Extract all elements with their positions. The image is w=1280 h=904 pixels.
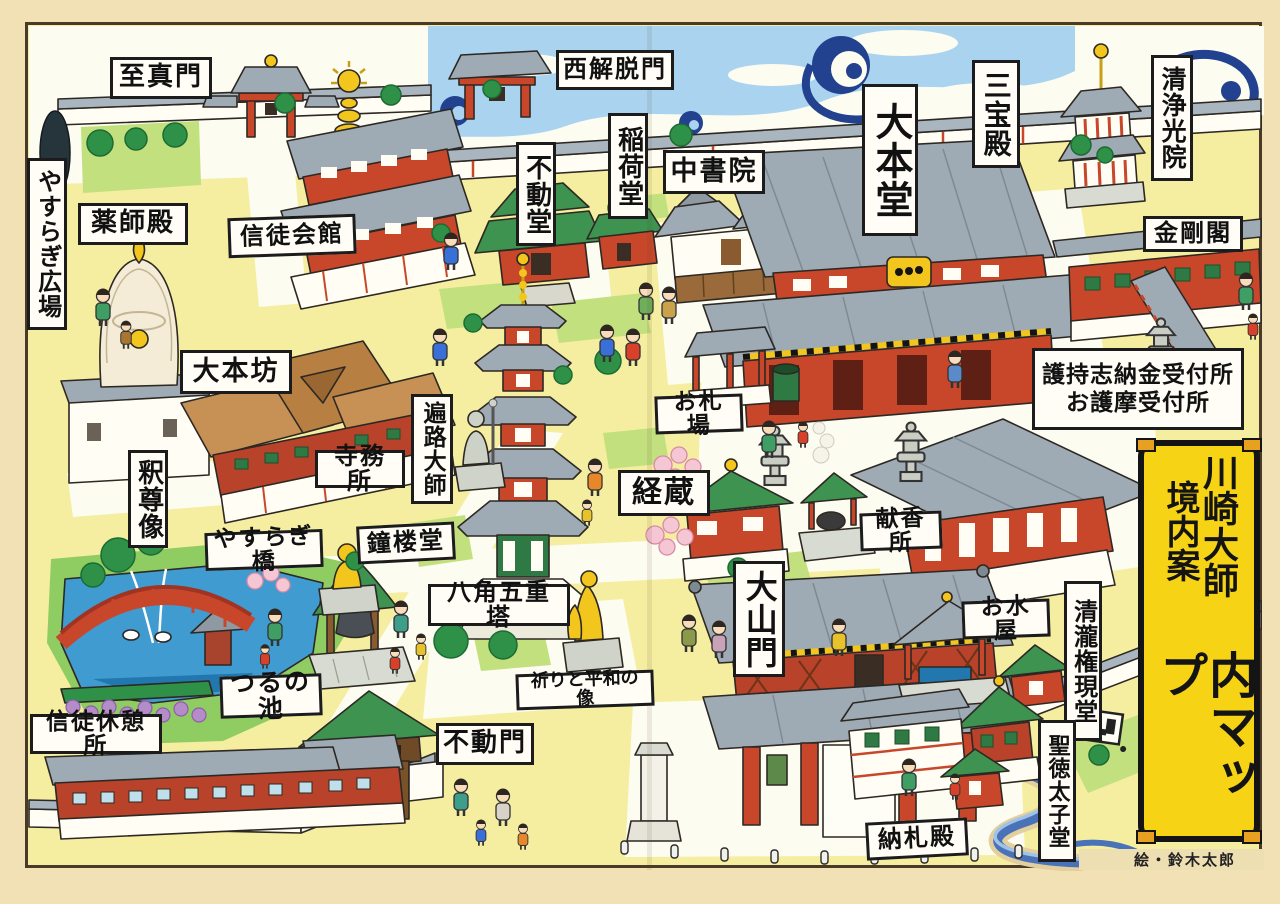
label-daihonbo: 大本坊 [180, 350, 292, 394]
label-jimusho: 寺務所 [315, 450, 405, 488]
artist-credit: 絵・鈴木太郎 [1128, 849, 1242, 870]
title-banner: 川崎大師 境内案 内マップ [1138, 440, 1260, 842]
label-kenkosho: 献香所 [859, 511, 942, 552]
label-reception-line2: お護摩受付所 [1066, 391, 1210, 415]
label-fudodo: 不動堂 [516, 142, 556, 246]
label-yasuragibashi: やすらぎ橋 [204, 529, 323, 571]
label-inori-to-heiwa: 祈りと平和の像 [515, 670, 654, 711]
label-shakusonzo: 釈尊像 [128, 450, 168, 548]
label-inarido: 稲荷堂 [608, 113, 648, 219]
label-fudomon: 不動門 [436, 723, 534, 765]
label-tsurunoike: つるの池 [219, 673, 322, 719]
label-shorodo: 鐘楼堂 [356, 521, 456, 564]
label-hakkaku-gojunoto: 八角五重塔 [428, 584, 570, 626]
banner-corner [1136, 438, 1156, 452]
label-daihondo: 大本堂 [862, 84, 918, 236]
banner-corner [1136, 830, 1156, 844]
label-henro-daishi: 遍路大師 [411, 394, 453, 504]
label-seiryu-gongendo: 清瀧権現堂 [1064, 581, 1102, 741]
banner-top: 川崎大師 境内案 [1144, 446, 1254, 650]
banner-col-left: 境内案 [1163, 480, 1197, 650]
label-daisanmon: 大山門 [733, 561, 785, 677]
label-reception: 護持志納金受付所 お護摩受付所 [1032, 348, 1244, 430]
label-kyozo: 経蔵 [618, 470, 710, 516]
banner-col-bottom: 内マップ [1144, 650, 1254, 848]
label-shotoku-taishido: 聖徳太子堂 [1038, 720, 1076, 862]
label-kongokaku: 金剛閣 [1143, 216, 1243, 252]
label-yakushiden: 薬師殿 [78, 203, 188, 245]
label-nosatsuden: 納札殿 [865, 817, 969, 860]
banner-col-right: 川崎大師 [1199, 454, 1235, 650]
label-yasuragi-hiroba: やすらぎ広場 [27, 158, 67, 330]
page: { "banner": { "title_full": "川崎大師境内案内マップ… [0, 0, 1280, 904]
label-omizuya: お水屋 [961, 598, 1050, 639]
label-chushoin: 中書院 [663, 150, 765, 194]
label-sanboden: 三宝殿 [972, 60, 1020, 168]
banner-corner [1242, 438, 1262, 452]
label-seijo-koin: 清浄光院 [1151, 55, 1193, 181]
label-shijinmon: 至真門 [110, 57, 212, 99]
label-nishi-gedatsumon: 西解脱門 [556, 50, 674, 90]
label-reception-line1: 護持志納金受付所 [1042, 363, 1234, 387]
label-shinto-kaikan: 信徒会館 [227, 214, 356, 258]
label-shinto-kyukeijo: 信徒休憩所 [30, 714, 162, 754]
label-ofudaba: お札場 [654, 393, 743, 434]
banner-corner [1242, 830, 1262, 844]
